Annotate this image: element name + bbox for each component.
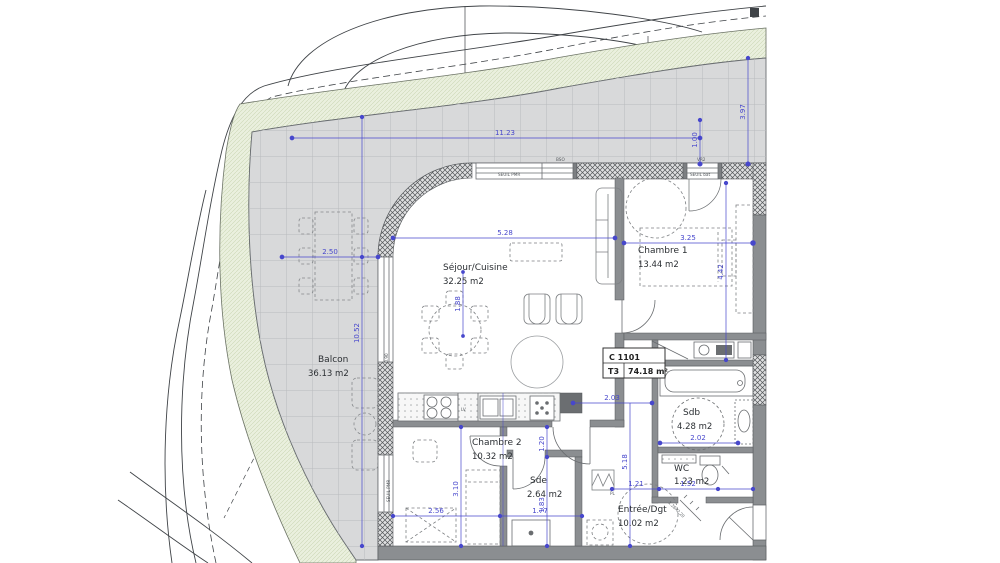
entrance-door-gap	[753, 505, 766, 540]
dim-wc-left: 1.21	[628, 480, 644, 488]
wc-shelf	[662, 455, 696, 463]
dim-table-zone: 1.88	[454, 296, 462, 312]
dim-chambre1-width: 3.25	[680, 234, 696, 242]
dim-chambre1-height: 4.42	[717, 264, 725, 280]
annotation-vr2: VR2	[697, 157, 706, 162]
sejour-bay-window	[476, 163, 573, 179]
dim-sdb-width: 2.02	[690, 434, 706, 442]
floor-plan-drawing: 11.23 1.00 3.97 5.28 3.25 2.50 10.52 4.4…	[0, 0, 1000, 563]
annotation-seuil-pmr-left: SEUIL PMR	[386, 480, 391, 502]
room-area-sdb: 4.28 m2	[677, 422, 712, 432]
room-area-sejour: 32.25 m2	[443, 277, 484, 287]
room-label-sde: Sde	[530, 476, 547, 486]
dim-balcony-gap: 1.00	[691, 132, 699, 148]
unit-type: T3	[608, 367, 619, 376]
sejour-side-window	[378, 257, 393, 362]
bottom-wall	[378, 546, 766, 560]
dim-chambre2-width: 2.56	[428, 507, 444, 515]
room-label-balcon: Balcon	[318, 355, 348, 365]
room-label-entree: Entrée/Dgt	[618, 504, 667, 515]
dim-balcon-height: 10.52	[353, 323, 361, 343]
dim-sde-door: 1.20	[538, 436, 546, 452]
room-label-chambre1: Chambre 1	[638, 246, 688, 256]
stove	[424, 395, 458, 419]
dim-terrace-height: 3.97	[739, 104, 747, 120]
unit-code: C 1101	[609, 353, 640, 362]
room-area-chambre2: 10.32 m2	[472, 452, 513, 462]
room-area-wc: 1.23 m2	[674, 477, 709, 487]
room-label-chambre2: Chambre 2	[472, 438, 522, 448]
room-area-entree: 10.02 m2	[618, 519, 659, 529]
annotation-pl: PL	[610, 491, 616, 496]
site-marker	[750, 8, 759, 17]
dim-hall-width: 2.03	[604, 394, 620, 402]
dim-hall-height: 5.18	[621, 454, 629, 470]
room-area-sde: 2.64 m2	[527, 490, 562, 500]
dim-sejour-width: 5.28	[497, 229, 513, 237]
room-area-balcon: 36.13 m2	[308, 369, 349, 379]
annotation-seuil-pmr: SEUIL PMR	[498, 172, 520, 177]
room-label-sdb: Sdb	[683, 408, 700, 418]
unit-label-box: C 1101 T3 74.18 m²	[603, 348, 668, 378]
annotation-seuil-bat: SEUIL bat	[690, 172, 710, 177]
dim-chambre2-height: 3.10	[452, 481, 460, 497]
annotation-lv: LV	[461, 407, 466, 412]
room-label-wc: WC	[674, 464, 689, 474]
kitchen-counter	[398, 393, 560, 421]
appliance	[716, 345, 732, 355]
room-label-sejour: Séjour/Cuisine	[443, 262, 508, 273]
dim-balcon-width: 2.50	[322, 248, 338, 256]
annotation-bso: BSO	[556, 157, 565, 162]
unit-area: 74.18 m²	[628, 367, 668, 376]
dim-top-width: 11.23	[495, 129, 515, 137]
dim-sill: 0.90	[384, 353, 389, 363]
room-area-chambre1: 13.44 m2	[638, 260, 679, 270]
floor-plan-page: 11.23 1.00 3.97 5.28 3.25 2.50 10.52 4.4…	[0, 0, 1000, 563]
